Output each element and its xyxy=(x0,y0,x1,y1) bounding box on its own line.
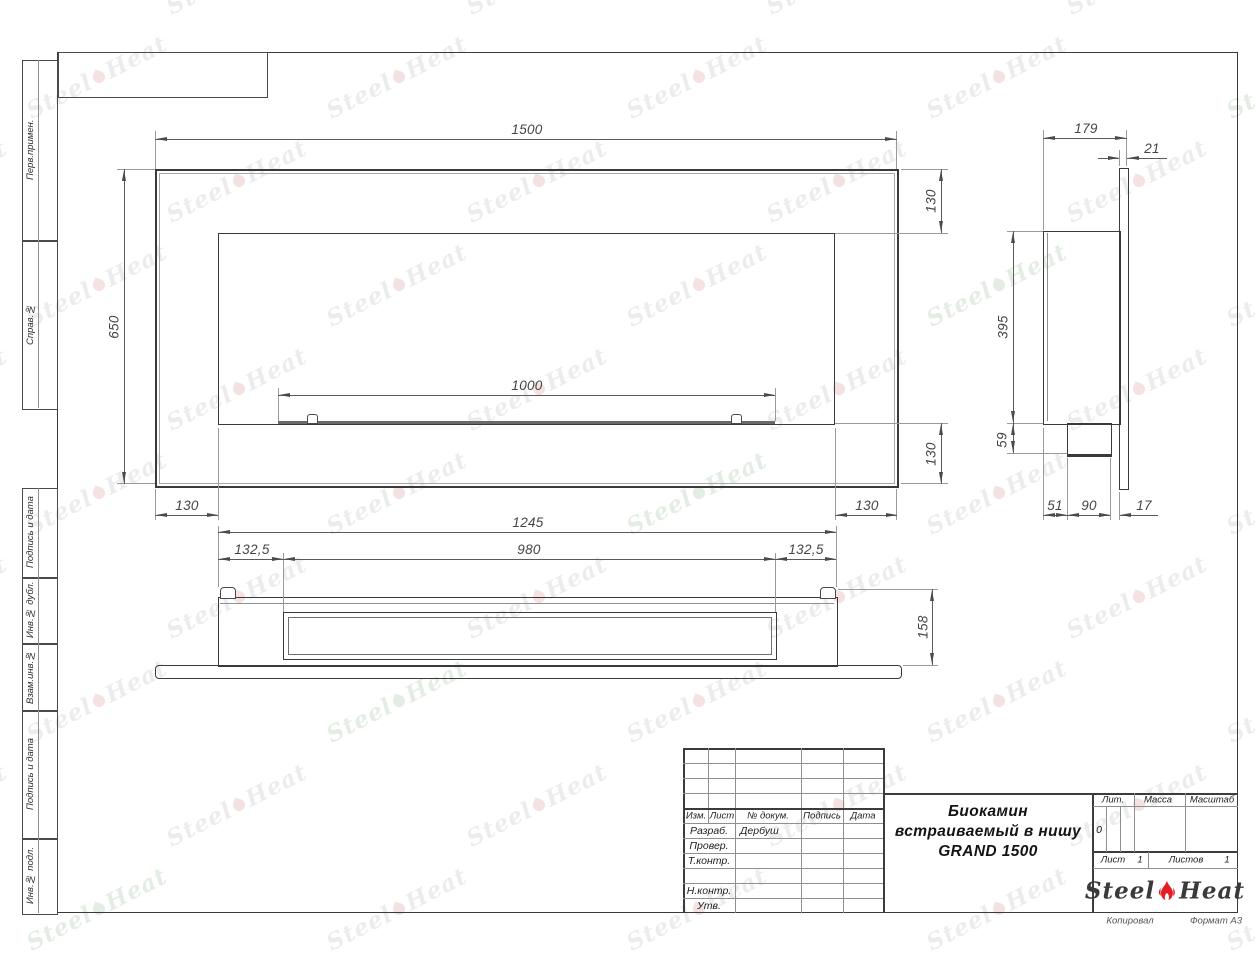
tb-lit-label: Лит. xyxy=(1102,795,1124,806)
extension-line xyxy=(1126,130,1127,166)
tb-header-izm: Изм. xyxy=(686,811,706,822)
extension-line xyxy=(1110,458,1111,520)
doc-title-line1: Биокамин xyxy=(948,803,1028,821)
band-label-perv-primen: Перв.примен. xyxy=(23,60,38,240)
watermark: SteelHeat xyxy=(0,550,12,644)
drawing-sheet: SteelHeatSteelHeatSteelHeatSteelHeatStee… xyxy=(0,0,1255,970)
bottom-view-bracket-right xyxy=(820,587,836,599)
arrowhead xyxy=(219,530,230,534)
side-view-niche-box xyxy=(1043,231,1121,425)
side-view-box-back-inner-line xyxy=(1047,233,1048,421)
dim-line-burner-width xyxy=(278,395,775,396)
tb-row-tkontr: Т.контр. xyxy=(688,855,730,867)
dim-label-burner-width: 1000 xyxy=(511,378,542,393)
arrowhead xyxy=(930,590,934,601)
arrowhead xyxy=(1128,156,1139,160)
doc-title-line2: встраиваемый в нишу xyxy=(895,823,1081,841)
dim-label-side-burner-depth: 90 xyxy=(1081,498,1097,513)
arrowhead xyxy=(156,137,167,141)
arrowhead xyxy=(939,221,943,232)
arrowhead xyxy=(1044,513,1055,517)
bottom-view-bracket-left xyxy=(220,587,236,599)
tb-header-list: Лист xyxy=(710,811,734,822)
front-view-burner-tab-right xyxy=(731,414,742,424)
dim-label-front-height: 650 xyxy=(107,315,122,338)
arrowhead xyxy=(1056,513,1067,517)
arrowhead xyxy=(1120,513,1131,517)
arrowhead xyxy=(1068,513,1079,517)
extension-line xyxy=(283,553,284,612)
steelheat-logo: Steel Heat xyxy=(1085,878,1245,905)
arrowhead xyxy=(764,393,775,397)
arrowhead xyxy=(939,472,943,483)
dim-label-burner-height: 59 xyxy=(995,432,1010,448)
watermark: SteelHeat xyxy=(0,342,12,436)
tb-list-value: 1 xyxy=(1137,855,1142,866)
extension-line xyxy=(117,483,155,484)
extension-line xyxy=(775,388,776,421)
tb-row-razrab: Разраб. xyxy=(690,825,728,837)
arrowhead xyxy=(885,137,896,141)
arrowhead xyxy=(284,557,295,561)
arrowhead xyxy=(122,472,126,483)
watermark: SteelHeat xyxy=(0,134,12,228)
watermark: SteelHeat xyxy=(0,758,12,852)
extension-line xyxy=(896,131,897,169)
watermark: SteelHeat xyxy=(462,0,612,21)
arrowhead xyxy=(272,557,283,561)
band-label-podpis-data-1: Подпись и дата xyxy=(23,488,38,577)
extension-line xyxy=(836,526,837,587)
band-label-vzam-inv: Взам.инв.№ xyxy=(23,643,38,710)
logo-steel-text: Steel xyxy=(1085,878,1155,905)
arrowhead xyxy=(825,530,836,534)
arrowhead xyxy=(1011,232,1015,243)
bottom-view-body-inner-line xyxy=(220,603,834,604)
band-label-inv-dubl: Инв.№ дубл. xyxy=(23,577,38,643)
arrowhead xyxy=(1011,424,1015,435)
arrowhead xyxy=(886,513,897,517)
watermark: SteelHeat xyxy=(1062,0,1212,21)
arrowhead xyxy=(1108,156,1119,160)
band-label-inv-podl: Инв.№ подл. xyxy=(23,838,38,913)
extension-line xyxy=(218,428,219,520)
dim-label-side-gap: 17 xyxy=(1136,498,1152,513)
arrowhead xyxy=(156,513,167,517)
dim-label-side-height: 395 xyxy=(996,315,1011,338)
arrowhead xyxy=(207,513,218,517)
arrowhead xyxy=(1099,513,1110,517)
arrowhead xyxy=(776,557,787,561)
top-left-reference-box xyxy=(58,52,268,98)
dim-label-offset-top: 130 xyxy=(924,189,939,212)
doc-title-line3: GRAND 1500 xyxy=(938,843,1038,861)
title-block-divider-main xyxy=(883,748,885,913)
arrowhead xyxy=(1044,136,1055,140)
dim-line-front-height xyxy=(124,169,125,484)
tb-row-nkontr: Н.контр. xyxy=(687,885,731,897)
arrowhead xyxy=(836,513,847,517)
title-block-left-edge xyxy=(683,748,685,913)
arrowhead xyxy=(1011,411,1015,422)
tb-massa-label: Масса xyxy=(1144,795,1172,806)
extension-line xyxy=(1067,458,1068,520)
tb-row-prover: Провер. xyxy=(689,840,728,852)
arrowhead xyxy=(930,653,934,664)
front-view-burner-line xyxy=(278,421,775,424)
tb-row-utv: Утв. xyxy=(697,900,721,912)
arrowhead xyxy=(939,424,943,435)
dim-label-front-width: 1500 xyxy=(511,122,542,137)
dim-label-side-depth: 179 xyxy=(1074,121,1097,136)
front-view-niche-opening xyxy=(218,233,835,425)
arrowhead xyxy=(825,557,836,561)
tb-header-sign: Подпись xyxy=(803,811,841,822)
tb-listov-value: 1 xyxy=(1224,855,1229,866)
bottom-view-slot-inner xyxy=(288,617,772,655)
arrowhead xyxy=(1011,441,1015,452)
extension-line xyxy=(775,553,776,612)
dim-line-front-width xyxy=(155,139,897,140)
tb-listov-label: Листов xyxy=(1169,855,1204,866)
extension-line xyxy=(1007,453,1067,454)
dim-label-offset-bottom: 130 xyxy=(924,442,939,465)
tb-masshtab-label: Масштаб xyxy=(1190,795,1234,806)
arrowhead xyxy=(939,170,943,181)
tb-header-date: Дата xyxy=(850,811,875,822)
extension-line xyxy=(1043,428,1044,520)
dim-line-side-height xyxy=(1013,231,1014,423)
flame-icon xyxy=(1157,879,1177,903)
title-block-top-left-edge xyxy=(683,748,883,750)
tb-row-razrab-value: Дербуш xyxy=(740,825,779,837)
dim-label-slot-width: 980 xyxy=(517,542,540,557)
watermark: SteelHeat xyxy=(762,0,912,21)
extension-line xyxy=(835,428,836,520)
arrowhead xyxy=(279,393,290,397)
dim-label-side-back: 51 xyxy=(1047,498,1063,513)
dim-label-bottom-width: 1245 xyxy=(512,515,543,530)
dim-label-bottom-height: 158 xyxy=(916,615,931,638)
bottom-view-facade-plate xyxy=(155,665,902,679)
front-view-burner-tab-left xyxy=(307,414,318,424)
extension-line xyxy=(1119,150,1120,166)
tb-list-label: Лист xyxy=(1101,855,1125,866)
logo-heat-text: Heat xyxy=(1179,878,1245,905)
extension-line xyxy=(838,589,938,590)
kopiroval-note: Копировал xyxy=(1106,916,1153,927)
watermark: SteelHeat xyxy=(0,0,12,21)
dim-label-bottom-left: 132,5 xyxy=(234,542,269,557)
dim-line-slot-width xyxy=(283,559,775,560)
tb-header-doc: № докум. xyxy=(747,811,789,822)
arrowhead xyxy=(764,557,775,561)
extension-line xyxy=(1043,130,1044,230)
dim-label-offset-right: 130 xyxy=(855,498,878,513)
band-label-podpis-data-2: Подпись и дата xyxy=(23,710,38,838)
band-label-sprav-no: Справ.№ xyxy=(23,240,38,408)
arrowhead xyxy=(1115,136,1126,140)
extension-line xyxy=(835,423,948,424)
side-view-burner-box xyxy=(1067,423,1112,457)
format-note: Формат А3 xyxy=(1190,916,1242,927)
dim-label-panel-thickness: 21 xyxy=(1144,141,1160,156)
extension-line xyxy=(903,665,938,666)
dim-line-bottom-width xyxy=(218,532,836,533)
arrowhead xyxy=(219,557,230,561)
watermark: SteelHeat xyxy=(162,0,312,21)
extension-line xyxy=(835,233,948,234)
tb-lit-value: 0 xyxy=(1096,824,1102,836)
arrowhead xyxy=(122,170,126,181)
dim-label-bottom-right: 132,5 xyxy=(788,542,823,557)
dim-label-offset-left: 130 xyxy=(175,498,198,513)
